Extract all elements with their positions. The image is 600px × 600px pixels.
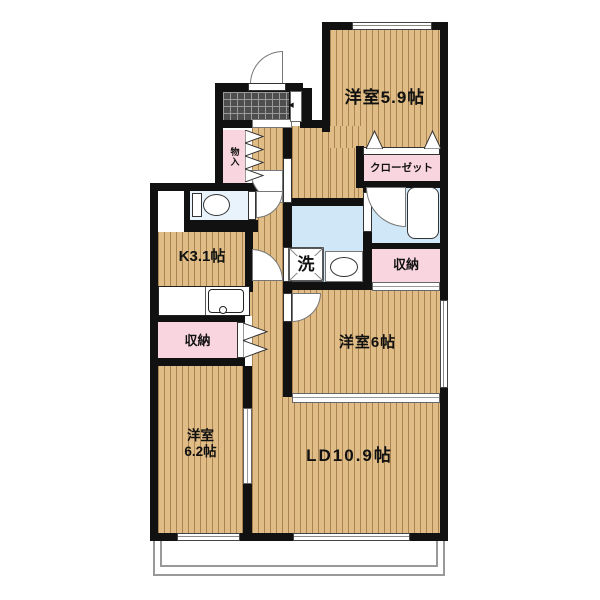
wall-left-wing-top <box>150 183 258 191</box>
laundry-label: 洗 <box>288 251 324 277</box>
kitchen-counter-seam <box>205 287 206 315</box>
bedroom-6-2-label: 洋室 6.2帖 <box>158 424 243 464</box>
wall-corridor-east-stub <box>283 126 292 159</box>
bedroom6-door-panel <box>283 293 292 322</box>
closet-bifold-door-right <box>424 130 441 149</box>
bedroom-5-9-label: 洋室5.9帖 <box>330 86 440 108</box>
entrance-door-arc <box>250 51 283 84</box>
wall-washroom-north <box>283 198 372 206</box>
wall-toilet-bottom <box>184 220 258 232</box>
entrance-tile <box>222 91 290 122</box>
entry-direction-arrow: ◀ <box>286 100 296 110</box>
living-dining-label: LD10.9帖 <box>262 444 437 466</box>
closet-label: クローゼット <box>363 158 440 178</box>
bedroom-6-2-label-line1: 洋室 <box>187 428 214 444</box>
wall-bottom-2 <box>240 533 293 541</box>
wall-bottom-3 <box>410 533 448 541</box>
balcony-inner-rail <box>160 541 438 567</box>
wall-storage-left-bottom <box>150 358 245 366</box>
wall-bath-bottom <box>366 243 440 249</box>
toilet-door-panel <box>248 191 256 220</box>
bathtub <box>407 187 439 239</box>
wall-top-1 <box>322 22 352 30</box>
wall-genkan-west <box>215 83 223 188</box>
kitchen-faucet-icon <box>219 306 227 314</box>
window-ld-south <box>293 533 410 541</box>
wall-bottom-1 <box>150 533 177 541</box>
wall-bedroom6-west-b <box>283 322 292 397</box>
wall-bedroom59-west <box>322 22 330 132</box>
mono-ire-bifold-door <box>245 130 265 182</box>
storage-left-bifold-door <box>243 323 269 358</box>
toilet-tank <box>192 193 202 217</box>
sliding-door-bedroom6-ld <box>292 393 440 403</box>
storage-left-label: 収納 <box>158 330 237 350</box>
wall-washroom-west <box>283 202 292 247</box>
washroom-sink-bowl <box>330 257 358 277</box>
wall-bedroom62-east-b <box>243 484 252 533</box>
laundry-label-text: 洗 <box>297 256 316 273</box>
storage-right-label: 収納 <box>372 254 440 274</box>
closet-bifold-door-left <box>366 130 383 149</box>
floorplan-canvas: ◀ 洗 洋室5.9帖 クロ <box>0 0 600 600</box>
wall-bedroom6-north <box>283 282 372 290</box>
wall-genkan-top-1 <box>215 83 249 91</box>
wall-outer-right-1 <box>440 22 448 300</box>
wall-storage-left-top <box>150 316 245 322</box>
storage-right-door <box>372 282 440 291</box>
kitchen-label: K3.1帖 <box>158 246 246 266</box>
entrance-door-panel <box>248 83 286 91</box>
window-bedroom6-east <box>440 300 448 388</box>
wall-outer-right-2 <box>440 388 448 541</box>
bedroom-6-2-label-line2: 6.2帖 <box>184 444 216 460</box>
wall-bath-west-b <box>363 232 372 282</box>
mono-ire-label: 物入 <box>224 134 244 180</box>
wall-bedroom62-east-a <box>243 366 252 408</box>
wall-genkan-bottom <box>222 120 252 128</box>
toilet-bowl <box>203 194 230 216</box>
bedroom59-door-panel <box>283 158 292 203</box>
entry-step-edge <box>252 119 292 128</box>
sliding-door-bedroom62-ld <box>243 408 252 484</box>
window-bedroom62-south <box>177 533 240 541</box>
window-top <box>352 22 432 30</box>
bedroom-6-label: 洋室6帖 <box>300 332 435 352</box>
